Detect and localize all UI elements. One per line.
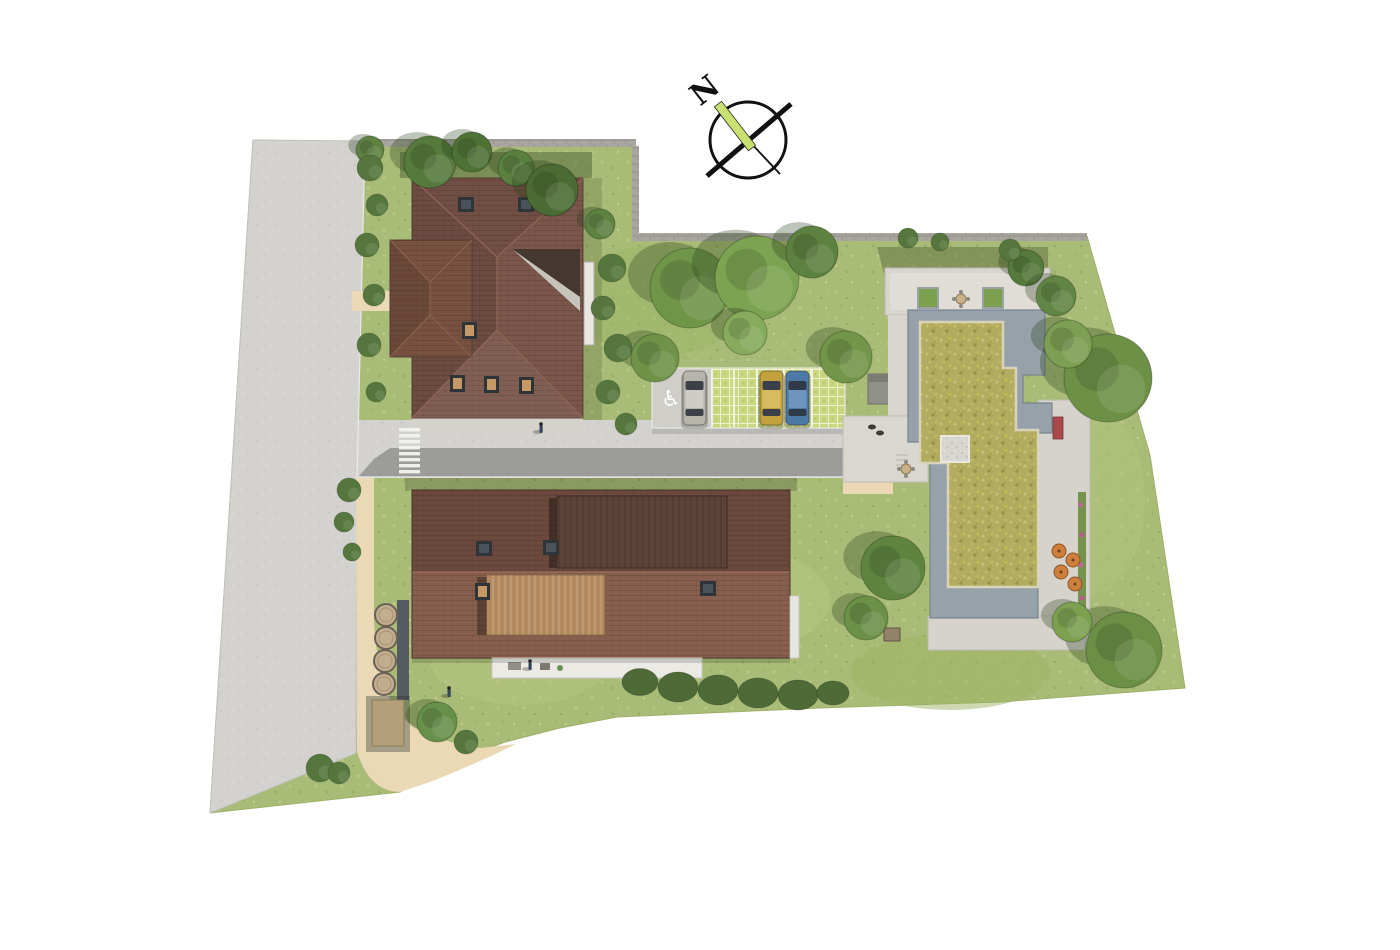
terrace-plant <box>557 665 563 671</box>
patio-chair <box>904 474 908 478</box>
crosswalk-stripe <box>399 446 420 449</box>
flowers <box>1079 503 1084 508</box>
bush <box>604 334 632 362</box>
patio-chair <box>959 304 963 308</box>
skylight-glass <box>465 325 474 336</box>
bush <box>898 228 918 248</box>
tree-canopy-light <box>546 182 575 211</box>
patio-table <box>956 294 966 304</box>
blue-car <box>784 371 811 429</box>
tree-canopy-light <box>467 146 489 168</box>
building-b-side-terrace <box>790 596 799 658</box>
skylight-glass <box>522 380 531 391</box>
asphalt-lane <box>358 448 862 477</box>
pet <box>868 425 876 430</box>
bush-highlight <box>348 488 360 500</box>
tree-canopy-light <box>747 265 793 311</box>
skylight <box>519 377 534 394</box>
garden-bench <box>884 628 900 641</box>
person-head <box>447 686 451 690</box>
crosswalk-stripe <box>399 470 420 473</box>
tank-lid <box>373 673 395 695</box>
bush-highlight <box>465 740 477 752</box>
bush-highlight <box>1009 248 1020 259</box>
person-body <box>529 662 532 670</box>
tree-canopy-light <box>432 716 454 738</box>
bush <box>328 762 350 784</box>
hedge-bush <box>778 680 818 710</box>
retaining-wall <box>397 600 409 700</box>
storage-tank <box>375 627 397 649</box>
tree-canopy-light <box>424 154 453 183</box>
skylight-glass <box>461 200 471 209</box>
bush <box>931 233 949 251</box>
skylight <box>450 375 465 392</box>
skylight-glass <box>479 544 489 553</box>
red-planter <box>1053 417 1063 439</box>
bush <box>357 333 381 357</box>
tree-canopy-light <box>861 611 885 635</box>
tree-canopy-light <box>1062 337 1088 363</box>
tree-canopy-light <box>1051 290 1073 312</box>
building-b-drop-shadow <box>412 658 790 663</box>
patio-chair <box>966 297 970 301</box>
bush <box>615 413 637 435</box>
tree-canopy-light <box>1067 616 1089 638</box>
bush-highlight <box>607 390 619 402</box>
bush-highlight <box>375 390 385 400</box>
building-b <box>412 490 799 678</box>
bush-highlight <box>338 771 349 782</box>
shadow-building-b <box>405 478 797 491</box>
skylight <box>484 376 499 393</box>
bush-highlight <box>369 165 382 178</box>
patio-table <box>901 464 911 474</box>
bush <box>598 254 626 282</box>
bush-highlight <box>373 293 384 304</box>
hedge-bush <box>658 672 698 702</box>
tank-lid <box>375 627 397 649</box>
storage-tank <box>374 650 396 672</box>
tree-canopy-light <box>649 351 675 377</box>
hedge-bush <box>622 669 658 696</box>
skylight <box>543 540 559 555</box>
parking-shadow <box>652 428 845 434</box>
crosswalk-stripe <box>399 434 420 437</box>
patio-chair <box>952 297 956 301</box>
car-roof <box>763 390 781 408</box>
person-body <box>540 425 543 433</box>
parasol-pole <box>1074 583 1077 586</box>
bush-highlight <box>602 306 614 318</box>
skylight-glass <box>546 543 556 552</box>
bush-highlight <box>366 243 378 255</box>
site-plan-canvas: ♿ <box>0 0 1400 950</box>
car-roof <box>789 390 807 408</box>
car-windshield <box>686 381 704 390</box>
person-head <box>528 659 532 663</box>
bush <box>366 194 388 216</box>
storage-tank <box>375 604 397 626</box>
bush-highlight <box>617 345 631 359</box>
tank-lid <box>375 604 397 626</box>
car-windshield <box>763 381 781 390</box>
person-head <box>539 422 543 426</box>
building-c-west-walk <box>888 315 908 420</box>
skylight <box>462 322 477 339</box>
skylight-glass <box>703 584 713 593</box>
pet <box>876 431 884 436</box>
storage-tank <box>373 673 395 695</box>
car-rear-window <box>686 409 704 416</box>
raised-roof-ribs <box>487 575 605 635</box>
bush <box>363 284 385 306</box>
tank-lid <box>374 650 396 672</box>
skylight <box>475 583 490 600</box>
skylight-glass <box>478 586 487 597</box>
roof-skylight-gravel <box>941 436 969 462</box>
hedge-bush <box>738 678 778 708</box>
parking-strip: ♿ <box>652 368 845 434</box>
bush <box>596 380 620 404</box>
bush-highlight <box>351 550 360 559</box>
silver-car <box>681 371 708 429</box>
site-plan-svg: ♿ <box>0 0 1400 950</box>
bush-highlight <box>907 236 917 246</box>
tree-canopy-light <box>1097 365 1145 413</box>
hedge-bush <box>817 681 849 705</box>
crosswalk-stripe <box>399 464 420 467</box>
tree-canopy-light <box>806 244 835 273</box>
crosswalk-stripe <box>399 428 420 431</box>
raised-roof-ribs <box>557 496 727 568</box>
handicap-symbol: ♿ <box>661 387 681 412</box>
car-rear-window <box>789 409 807 416</box>
patio-chair <box>904 460 908 464</box>
crosswalk-stripe <box>399 440 420 443</box>
roof-planter <box>983 288 1003 308</box>
bush-highlight <box>343 520 353 530</box>
tree-canopy-light <box>840 349 869 378</box>
skylight <box>458 197 474 212</box>
patio-chair <box>959 290 963 294</box>
bush-highlight <box>368 343 380 355</box>
bush <box>999 239 1021 261</box>
person-body <box>448 689 451 697</box>
tree-canopy-light <box>885 558 920 593</box>
flowers <box>1080 596 1085 601</box>
terrace-lounge <box>540 663 550 670</box>
bush <box>454 730 478 754</box>
car-rear-window <box>763 409 781 416</box>
skylight-glass <box>453 378 462 389</box>
garden-shed <box>366 696 410 752</box>
bush <box>366 382 386 402</box>
car-roof <box>686 390 704 408</box>
skylight <box>700 581 716 596</box>
tree-canopy-light <box>596 220 613 237</box>
bush <box>337 478 361 502</box>
bush <box>591 296 615 320</box>
bush-highlight <box>625 422 636 433</box>
bush-highlight <box>376 203 387 214</box>
patio-chair <box>897 467 901 471</box>
flowers <box>1080 533 1085 538</box>
parasol-pole <box>1058 550 1061 553</box>
crosswalk-stripe <box>399 458 420 461</box>
crosswalk-stripe <box>399 452 420 455</box>
bush-highlight <box>611 265 625 279</box>
bush <box>355 233 379 257</box>
roof-planter <box>918 288 938 308</box>
bush <box>357 155 383 181</box>
patio-chair <box>911 467 915 471</box>
parasol-pole <box>1060 571 1063 574</box>
car-windshield <box>789 381 807 390</box>
tree-canopy-light <box>740 326 764 350</box>
boundary-wall-north-east <box>636 233 1087 241</box>
tree-canopy-light <box>1115 639 1157 681</box>
utility-box-lid <box>868 374 890 382</box>
building-a-walkway <box>412 418 583 431</box>
bush <box>343 543 361 561</box>
hedge-bush <box>698 675 738 705</box>
skylight <box>476 541 492 556</box>
parasol-pole <box>1072 559 1075 562</box>
skylight-glass <box>487 379 496 390</box>
terrace-table <box>508 662 521 670</box>
bush-highlight <box>939 240 948 249</box>
yellow-car <box>758 371 785 429</box>
shed-roof <box>372 700 404 746</box>
bush <box>334 512 354 532</box>
boundary-wall-notch <box>632 146 639 241</box>
